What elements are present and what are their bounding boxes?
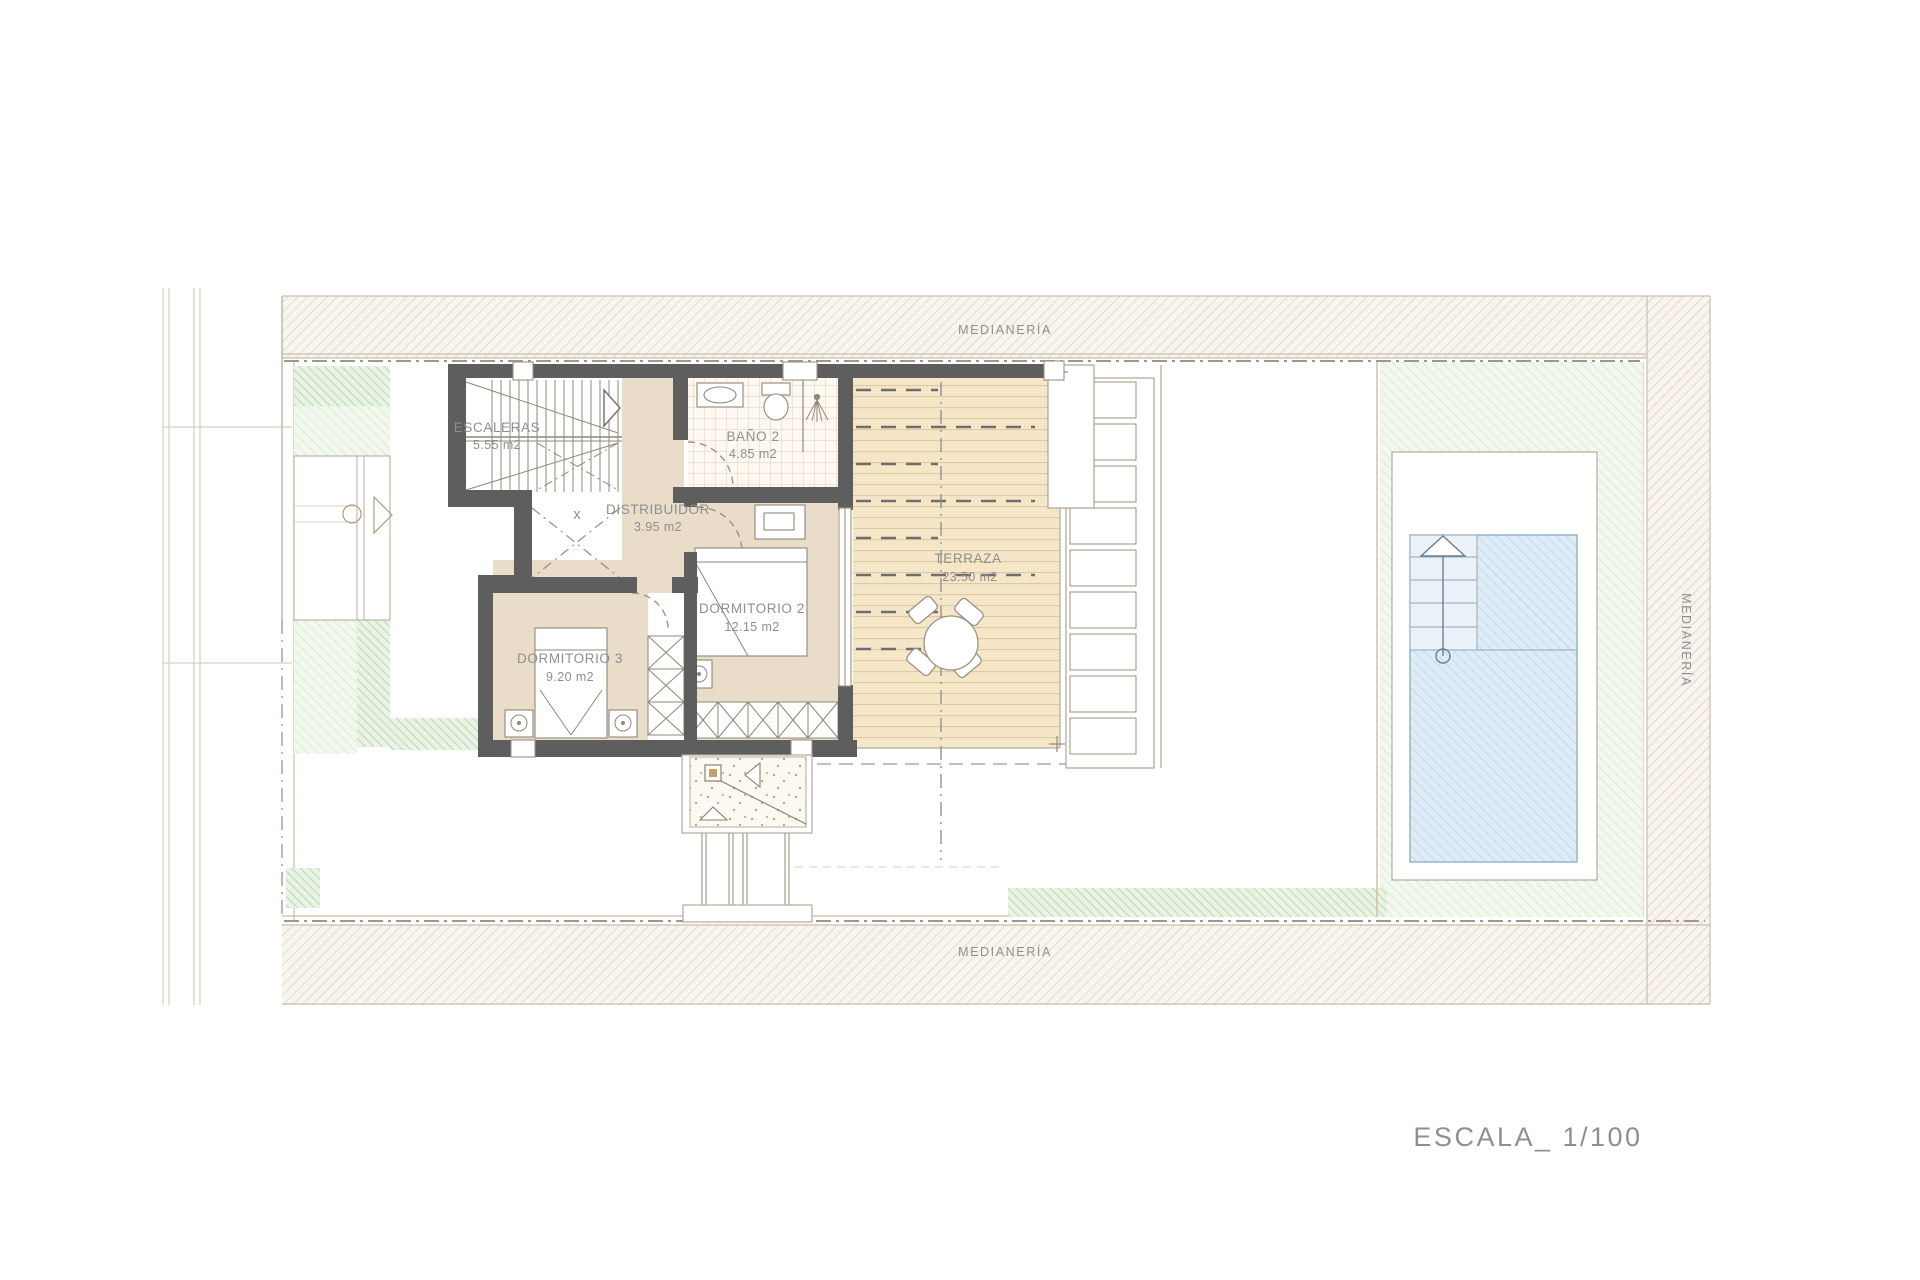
left-porch [294, 456, 392, 620]
terrace-screen [1048, 365, 1094, 508]
garden-patch [390, 718, 478, 750]
stairs-floor [466, 378, 622, 493]
window [783, 362, 817, 380]
bottom-boundary-label: MEDIANERÍA [958, 944, 1052, 959]
room-area-bano2: 4.85 m2 [729, 447, 777, 461]
round-table [924, 616, 978, 670]
garden-patch [286, 868, 320, 908]
room-label-bano2: BAÑO 2 [726, 429, 779, 444]
wardrobe-bedroom2 [688, 702, 838, 738]
room-label-dormitorio2: DORMITORIO 2 [699, 601, 805, 616]
room-label-dormitorio3: DORMITORIO 3 [517, 651, 623, 666]
garden-strip [1008, 888, 1387, 917]
room-label-terraza: TERRAZA [934, 551, 1001, 566]
window [513, 362, 533, 380]
top-boundary-label: MEDIANERÍA [958, 322, 1052, 337]
room-label-escaleras: ESCALERAS [454, 420, 540, 435]
window [511, 740, 535, 757]
garden-patch [294, 406, 390, 456]
pool-area [1392, 452, 1597, 880]
room-area-escaleras: 5.55 m2 [473, 438, 521, 452]
floor-plan-page: x [0, 0, 1920, 1280]
right-band [1647, 296, 1710, 1005]
sink-basin [704, 387, 736, 403]
room-area-terraza: 23.50 m2 [942, 570, 997, 584]
scale-label: ESCALA_ 1/100 [1413, 1122, 1642, 1152]
room-area-distribuidor: 3.95 m2 [634, 520, 682, 534]
room-label-distribuidor: DISTRIBUIDOR [606, 502, 710, 517]
bottom-band [282, 925, 1710, 1005]
toilet-tank [762, 383, 790, 395]
garden-patch [294, 366, 390, 406]
toilet-bowl [764, 394, 788, 420]
wardrobe-bedroom3 [648, 636, 684, 735]
desk-chair [764, 513, 794, 530]
stair-landing [683, 905, 812, 922]
room-area-dormitorio3: 9.20 m2 [546, 670, 594, 684]
void-marker: x [573, 506, 581, 523]
terrace-pillar [1044, 361, 1064, 380]
garden-patch [294, 620, 357, 754]
right-boundary-label: MEDIANERÍA [1679, 593, 1694, 687]
patio-post-core [709, 769, 717, 777]
floor-plan-drawing: x [0, 0, 1920, 1280]
room-area-dormitorio2: 12.15 m2 [724, 620, 779, 634]
